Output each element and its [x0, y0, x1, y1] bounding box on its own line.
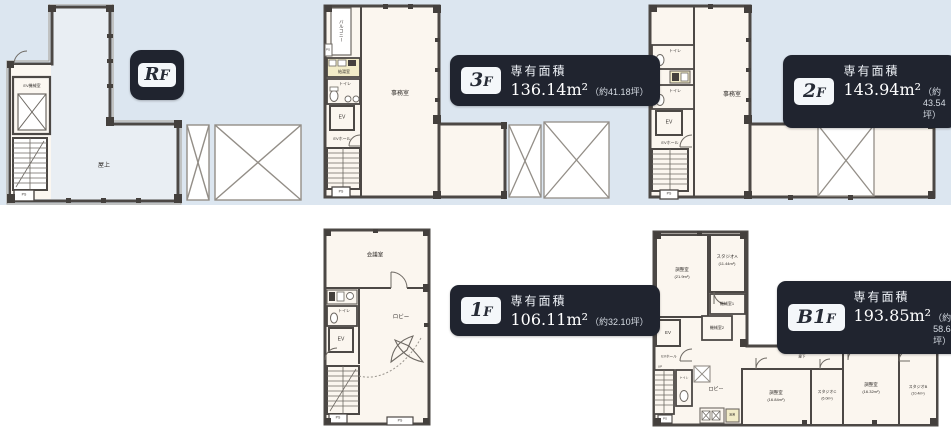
- floor-badge-b1f: B1F 専有面積 193.85m² （約58.64坪）: [777, 281, 951, 354]
- floor-badge-2f: 2F 専有面積 143.94m² （約43.54坪）: [783, 55, 951, 128]
- floor-chip-2f: 2F: [794, 78, 834, 105]
- f3-wing: [439, 124, 505, 197]
- floor-chip-2f-main: 2: [803, 82, 816, 101]
- floorplan-sheet: 屋上 EV機械室 PS: [0, 0, 951, 441]
- rf-plan-drawing: [6, 4, 311, 214]
- room-label-b1-evhall: EVホール: [661, 355, 676, 359]
- area-tsubo-3f: （約41.18坪）: [590, 85, 649, 98]
- room-label-b1-up: UP: [658, 366, 662, 369]
- floor-chip-b1f: B1F: [788, 304, 845, 331]
- room-label-ev-machine: EV機械室: [23, 84, 40, 88]
- floor-badge-1f: 1F 専有面積 106.11m² （約32.10坪）: [450, 285, 660, 336]
- floor-chip-b1f-suffix: F: [826, 313, 835, 326]
- room-label-f1-lobby: ロビー: [393, 315, 410, 321]
- room-label-rf-ps: PS: [22, 193, 27, 197]
- area-title-3f: 専有面積: [510, 62, 648, 79]
- room-label-f3-toilet: トイレ: [339, 82, 351, 86]
- room-label-f2-office: 事務室: [723, 92, 741, 98]
- room-label-rooftop: 屋上: [98, 163, 110, 169]
- floor-chip-1f-suffix: F: [483, 306, 492, 319]
- room-label-b1-toilet: トイレ: [679, 377, 688, 380]
- floor-chip-2f-suffix: F: [816, 87, 825, 100]
- room-label-b1-lobby: ロビー: [708, 388, 723, 393]
- room-label-f3-evhall: EVホール: [333, 137, 350, 141]
- room-label-f3-office: 事務室: [391, 91, 409, 97]
- room-label-b1-control-b-area: (16.84m²): [767, 398, 784, 402]
- area-value-b1f: 193.85m²: [854, 306, 932, 325]
- f3-void-areas: [509, 122, 609, 198]
- area-value-1f: 106.11m²: [510, 310, 588, 329]
- rf-door-arc: [14, 51, 27, 64]
- room-label-f1-ps-2: PS: [398, 419, 403, 423]
- room-label-b1-corridor: 廊下: [799, 355, 806, 359]
- room-label-b1-studio-b-area: (10.4m²): [911, 392, 924, 396]
- area-title-b1f: 専有面積: [854, 288, 951, 305]
- room-label-f1-toilet: トイレ: [338, 309, 350, 313]
- room-label-b1-control-b: 調整室: [769, 391, 783, 396]
- badge-info-3f: 専有面積 136.14m² （約41.18坪）: [510, 62, 648, 99]
- f2-void-area: [818, 125, 874, 196]
- floor-chip-b1f-main: B1: [797, 308, 826, 327]
- floor-chip-3f: 3F: [461, 67, 501, 94]
- room-label-f2-toilet-2: トイレ: [669, 89, 681, 93]
- area-tsubo-1f: （約32.10坪）: [590, 315, 649, 328]
- room-label-f2-ps: PS: [667, 192, 672, 196]
- room-label-b1-studio-c: スタジオC: [818, 390, 837, 394]
- room-label-f3-balcony: バルコニー: [339, 20, 344, 43]
- room-label-b1-studio-b: スタジオB: [909, 385, 928, 389]
- floor-badge-3f: 3F 専有面積 136.14m² （約41.18坪）: [450, 55, 660, 106]
- room-label-f2-toilet-1: トイレ: [669, 49, 681, 53]
- room-label-b1-control-c: 調整室: [864, 383, 878, 388]
- room-label-b1-studio-a: スタジオA: [716, 255, 737, 260]
- room-label-b1-kitchenette: 湯沸: [729, 414, 735, 417]
- room-label-f3-ev: EV: [339, 116, 346, 121]
- floorplan-rf: 屋上 EV機械室 PS: [6, 4, 311, 214]
- room-label-b1-control-a-area: (21.9m²): [674, 275, 689, 279]
- floor-badge-rf: RF: [130, 50, 184, 100]
- area-value-3f: 136.14m²: [510, 80, 588, 99]
- floorplan-1f: 会議室 ロビー トイレ EV PS PS: [323, 228, 433, 428]
- room-label-f1-ps-1: PS: [336, 416, 341, 420]
- room-label-f1-meeting: 会議室: [367, 253, 384, 259]
- room-label-f3-kitchen: 給湯室: [338, 70, 350, 74]
- floor-chip-1f-main: 1: [470, 301, 483, 320]
- area-tsubo-2f: （約43.54坪）: [923, 85, 946, 121]
- floor-chip-rf-main: R: [145, 66, 160, 84]
- room-label-b1-control-a: 調整室: [675, 268, 689, 273]
- area-title-2f: 専有面積: [843, 62, 945, 79]
- room-label-b1-ps: PS: [663, 418, 667, 421]
- badge-info-b1f: 専有面積 193.85m² （約58.64坪）: [854, 288, 951, 347]
- room-label-b1-machine-1: 機械室1: [720, 302, 734, 306]
- room-label-b1-machine-2: 機械室2: [710, 326, 724, 330]
- room-label-f1-ev: EV: [338, 338, 345, 343]
- area-value-2f: 143.94m²: [843, 80, 921, 99]
- floor-chip-3f-main: 3: [470, 71, 483, 90]
- floor-chip-3f-suffix: F: [483, 76, 492, 89]
- room-label-f2-ev: EV: [666, 121, 673, 126]
- room-label-b1-ev: EV: [665, 331, 671, 336]
- area-title-1f: 専有面積: [510, 292, 648, 309]
- floor-chip-rf-suffix: F: [160, 69, 170, 83]
- floor-chip-1f: 1F: [461, 297, 501, 324]
- room-label-b1-control-c-area: (16.32m²): [862, 390, 879, 394]
- room-label-b1-studio-c-area: (6.0m²): [821, 397, 832, 401]
- rf-core: [11, 51, 51, 201]
- badge-info-1f: 専有面積 106.11m² （約32.10坪）: [510, 292, 648, 329]
- badge-info-2f: 専有面積 143.94m² （約43.54坪）: [843, 62, 945, 121]
- room-label-b1-studio-a-area: (11.44m²): [718, 262, 735, 266]
- room-label-f2-evhall: EVホール: [661, 141, 678, 145]
- room-label-f3-ps-bottom: PS: [339, 190, 344, 194]
- floor-chip-rf: RF: [138, 63, 177, 87]
- room-label-f3-ps-side: PS: [326, 49, 330, 52]
- rf-void-areas: [187, 125, 301, 200]
- area-tsubo-b1f: （約58.64坪）: [933, 311, 951, 347]
